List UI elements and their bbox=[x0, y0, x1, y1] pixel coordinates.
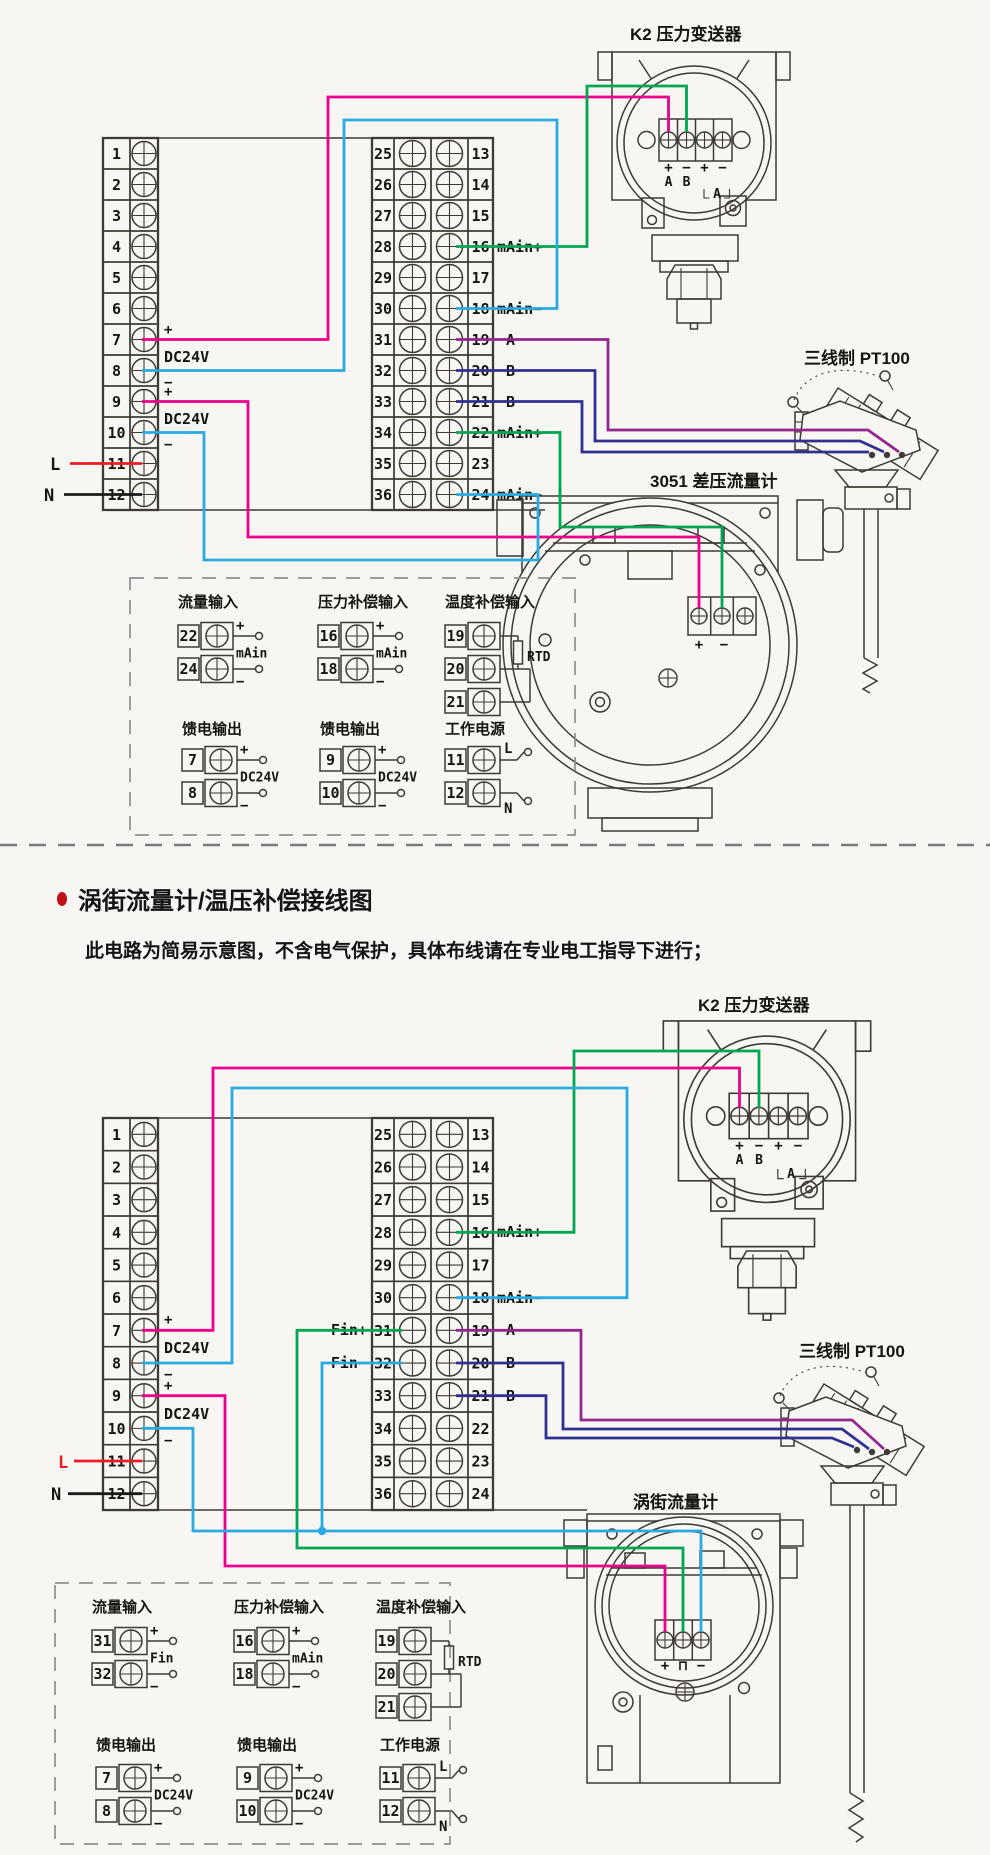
terminal-number: 12 bbox=[446, 784, 464, 802]
terminal-number: 1 bbox=[112, 1126, 121, 1144]
sign-label: − bbox=[150, 1679, 158, 1695]
terminal-number: 13 bbox=[471, 1126, 489, 1144]
terminal-number: 11 bbox=[446, 751, 464, 769]
plus-label: + bbox=[164, 384, 172, 400]
terminal-number: 31 bbox=[374, 331, 392, 349]
terminal-number: 30 bbox=[374, 300, 392, 318]
sign-label: + bbox=[295, 1760, 303, 1776]
minus-label: − bbox=[164, 1433, 172, 1449]
terminal-number: 31 bbox=[93, 1632, 111, 1650]
k2-sign: − bbox=[682, 160, 690, 176]
line-L-tag: L bbox=[439, 1759, 447, 1775]
vortex-flowmeter-drawing: 涡街流量计 + ⊓ − bbox=[564, 1492, 803, 1783]
legend-title: 馈电输出 bbox=[181, 720, 242, 738]
terminal-number: 8 bbox=[188, 784, 197, 802]
pt100-label: 三线制 PT100 bbox=[804, 348, 910, 368]
terminal-number: 25 bbox=[374, 145, 392, 163]
vortex-flowmeter-label: 涡街流量计 bbox=[633, 1492, 718, 1512]
sign-label: + bbox=[376, 618, 384, 634]
terminal-number: 33 bbox=[374, 1387, 392, 1405]
terminal-number: 7 bbox=[112, 331, 121, 349]
k2-sign: − bbox=[755, 1138, 763, 1154]
terminal-number: 15 bbox=[471, 1191, 489, 1209]
legend-title: 馈电输出 bbox=[236, 1736, 297, 1754]
sign-label: − bbox=[295, 1816, 303, 1832]
sign-label: − bbox=[376, 674, 384, 690]
line-N-label: N bbox=[51, 1485, 61, 1505]
signal-tag: mAin bbox=[376, 647, 407, 662]
k2-pressure-transmitter: K2 压力变送器 + − + − A B A bbox=[598, 24, 790, 329]
section-title: 涡街流量计/温压补偿接线图 bbox=[78, 881, 373, 916]
terminal-number: 29 bbox=[374, 269, 392, 287]
legend-title: 温度补偿输入 bbox=[445, 593, 535, 611]
k2-loop-indicator: A bbox=[713, 187, 721, 202]
terminal-number: 27 bbox=[374, 207, 392, 225]
meter-minus-sign: − bbox=[697, 1658, 705, 1674]
terminal-number: 29 bbox=[374, 1257, 392, 1275]
signal-tag: mAin bbox=[236, 647, 267, 662]
terminal-legend: 流量输入3132+−Fin 压力补偿输入1618+−mAin 温度补偿输入192… bbox=[55, 1583, 482, 1844]
signal-tag: Fin bbox=[150, 1652, 173, 1667]
k2-loop-indicator: A bbox=[787, 1167, 795, 1182]
legend-flow-input: 流量输入2224+−mAin bbox=[178, 593, 267, 690]
terminal-number: 33 bbox=[374, 393, 392, 411]
terminal-number: 17 bbox=[471, 1257, 489, 1275]
legend-title: 馈电输出 bbox=[95, 1736, 156, 1754]
legend-title: 压力补偿输入 bbox=[234, 1598, 324, 1616]
terminal-number: 9 bbox=[112, 1387, 121, 1405]
legend-pressure-input: 压力补偿输入1618+−mAin bbox=[318, 593, 408, 690]
legend-flow-input: 流量输入3132+−Fin bbox=[92, 1598, 177, 1695]
line-L-tag: L bbox=[504, 741, 512, 757]
terminal-number: 20 bbox=[377, 1665, 395, 1683]
k2-sign: + bbox=[735, 1138, 743, 1154]
terminal-number: 28 bbox=[374, 1224, 392, 1242]
terminal-number: 17 bbox=[471, 269, 489, 287]
terminal-number: 9 bbox=[243, 1769, 252, 1787]
legend-title: 温度补偿输入 bbox=[376, 1598, 466, 1616]
plus-label: + bbox=[164, 1378, 172, 1394]
terminal-number: 25 bbox=[374, 1126, 392, 1144]
line-L-label: L bbox=[50, 455, 60, 475]
sign-label: + bbox=[240, 742, 248, 758]
section-note: 此电路为简易示意图，不含电气保护，具体布线请在专业电工指导下进行； bbox=[85, 936, 712, 963]
terminal-number: 32 bbox=[93, 1665, 111, 1683]
terminal-number: 9 bbox=[112, 393, 121, 411]
terminal-number: 35 bbox=[374, 1453, 392, 1471]
legend-title: 流量输入 bbox=[178, 593, 238, 611]
dp-flowmeter-label: 3051 差压流量计 bbox=[650, 471, 778, 491]
k2-sign: − bbox=[794, 1138, 802, 1154]
rtd-tag: RTD bbox=[458, 1655, 482, 1670]
signal-tag: mAin bbox=[292, 1652, 323, 1667]
legend-title: 流量输入 bbox=[92, 1598, 152, 1616]
sign-label: − bbox=[236, 674, 244, 690]
wiring-diagram-page: 123456789101112 251326142715281629173018… bbox=[0, 0, 990, 1855]
sign-label: − bbox=[240, 798, 248, 814]
terminal-number: 24 bbox=[179, 660, 197, 678]
sign-label: − bbox=[292, 1679, 300, 1695]
pt100-sensor-drawing: 三线制 PT100 bbox=[774, 1341, 931, 1842]
section-header: 涡街流量计/温压补偿接线图 此电路为简易示意图，不含电气保护，具体布线请在专业电… bbox=[0, 848, 990, 988]
terminal-number: 23 bbox=[471, 1453, 489, 1471]
terminal-number: 8 bbox=[102, 1802, 111, 1820]
terminal-number: 2 bbox=[112, 176, 121, 194]
line-L-label: L bbox=[58, 1453, 68, 1473]
sign-label: + bbox=[236, 618, 244, 634]
legend-feed-output-1: 馈电输出78+−DC24V bbox=[181, 720, 279, 814]
terminal-number: 23 bbox=[471, 455, 489, 473]
sign-label: + bbox=[154, 1760, 162, 1776]
pt100-sensor-drawing: 三线制 PT100 bbox=[788, 348, 945, 693]
legend-feed-output-2: 馈电输出910+−DC24V bbox=[236, 1736, 334, 1832]
k2-sign: + bbox=[664, 160, 672, 176]
k2-transmitter-label: K2 压力变送器 bbox=[630, 24, 742, 44]
terminal-number: 35 bbox=[374, 455, 392, 473]
terminal-number: 21 bbox=[377, 1698, 395, 1716]
terminal-number: 28 bbox=[374, 238, 392, 256]
terminal-number: 22 bbox=[179, 627, 197, 645]
middle-terminal-strip: 2513261427152816291730183119322033213422… bbox=[372, 138, 493, 510]
k2-terminal-B: B bbox=[755, 1153, 763, 1168]
legend-feed-output-1: 馈电输出78+−DC24V bbox=[95, 1736, 193, 1832]
terminal-number: 2 bbox=[112, 1159, 121, 1177]
terminal-number: 6 bbox=[112, 300, 121, 318]
wire-feed1-to-k2-plus bbox=[142, 97, 669, 340]
terminal-number: 18 bbox=[235, 1665, 253, 1683]
legend-title: 工作电源 bbox=[445, 720, 505, 738]
terminal-number: 13 bbox=[471, 145, 489, 163]
dc24v-label: DC24V bbox=[164, 348, 209, 366]
terminal-number: 22 bbox=[471, 1420, 489, 1438]
middle-terminal-strip: 2513261427152816291730183119322033213422… bbox=[372, 1118, 493, 1510]
k2-sign: − bbox=[718, 160, 726, 176]
terminal-number: 36 bbox=[374, 1485, 392, 1503]
terminal-number: 20 bbox=[446, 660, 464, 678]
k2-terminal-A: A bbox=[665, 175, 673, 190]
line-N-tag: N bbox=[504, 801, 512, 817]
meter-plus-sign: + bbox=[661, 1658, 669, 1674]
terminal-number: 7 bbox=[188, 751, 197, 769]
terminal-number: 19 bbox=[377, 1632, 395, 1650]
meter-minus-sign: − bbox=[720, 637, 728, 653]
terminal-number: 26 bbox=[374, 176, 392, 194]
legend-temperature-input: 温度补偿输入192021RTD bbox=[376, 1598, 482, 1721]
terminal-number: 26 bbox=[374, 1159, 392, 1177]
dc24v-label: DC24V bbox=[164, 1405, 209, 1423]
k2-pressure-transmitter: K2 压力变送器 + − + − A B A bbox=[663, 995, 870, 1320]
terminal-number: 10 bbox=[107, 424, 125, 442]
terminal-number: 14 bbox=[471, 1159, 489, 1177]
pt100-label: 三线制 PT100 bbox=[799, 1341, 905, 1361]
terminal-number: 7 bbox=[102, 1769, 111, 1787]
terminal-number: 10 bbox=[321, 784, 339, 802]
terminal-number: 32 bbox=[374, 362, 392, 380]
legend-title: 压力补偿输入 bbox=[318, 593, 408, 611]
left-terminal-strip: 123456789101112 bbox=[103, 1118, 158, 1510]
terminal-number: 4 bbox=[112, 238, 121, 256]
minus-label: − bbox=[164, 437, 172, 453]
rtd-tag: RTD bbox=[527, 650, 551, 665]
legend-working-power: 工作电源1112LN bbox=[445, 720, 532, 817]
sign-label: + bbox=[150, 1623, 158, 1639]
meter-plus-sign: + bbox=[695, 637, 703, 653]
signal-tag: DC24V bbox=[154, 1789, 193, 1804]
terminal-number: 8 bbox=[112, 362, 121, 380]
terminal-number: 3 bbox=[112, 1191, 121, 1209]
terminal-number: 18 bbox=[319, 660, 337, 678]
terminal-number: 5 bbox=[112, 1257, 121, 1275]
plus-label: + bbox=[164, 322, 172, 338]
line-N-label: N bbox=[44, 486, 54, 506]
terminal-number: 5 bbox=[112, 269, 121, 287]
terminal-number: 10 bbox=[107, 1420, 125, 1438]
left-terminal-strip: 123456789101112 bbox=[103, 138, 158, 510]
terminal-number: 15 bbox=[471, 207, 489, 225]
sign-label: − bbox=[154, 1816, 162, 1832]
k2-sign: + bbox=[774, 1138, 782, 1154]
terminal-number: 7 bbox=[112, 1322, 121, 1340]
terminal-number: 19 bbox=[446, 627, 464, 645]
terminal-number: 11 bbox=[381, 1769, 399, 1787]
wire-junction-dot bbox=[318, 1527, 326, 1535]
k2-sign: + bbox=[700, 160, 708, 176]
terminal-number: 16 bbox=[235, 1632, 253, 1650]
meter-pulse-sign: ⊓ bbox=[679, 1658, 688, 1674]
sign-label: + bbox=[378, 742, 386, 758]
terminal-number: 16 bbox=[319, 627, 337, 645]
dc24v-label: DC24V bbox=[164, 1339, 209, 1357]
terminal-number: 8 bbox=[112, 1355, 121, 1373]
terminal-number: 36 bbox=[374, 486, 392, 504]
terminal-number: 6 bbox=[112, 1289, 121, 1307]
sign-label: − bbox=[378, 798, 386, 814]
terminal-number: 14 bbox=[471, 176, 489, 194]
k2-terminal-A: A bbox=[736, 1153, 744, 1168]
k2-transmitter-label: K2 压力变送器 bbox=[698, 995, 810, 1015]
terminal-number: 27 bbox=[374, 1191, 392, 1209]
terminal-number: 10 bbox=[238, 1802, 256, 1820]
signal-tag: DC24V bbox=[295, 1789, 334, 1804]
legend-title: 工作电源 bbox=[380, 1736, 440, 1754]
line-N-tag: N bbox=[439, 1819, 447, 1835]
terminal-number: 34 bbox=[374, 1420, 392, 1438]
legend-pressure-input: 压力补偿输入1618+−mAin bbox=[234, 1598, 324, 1695]
legend-feed-output-2: 馈电输出910+−DC24V bbox=[319, 720, 417, 814]
terminal-number: 30 bbox=[374, 1289, 392, 1307]
terminal-number: 21 bbox=[446, 693, 464, 711]
terminal-number: 9 bbox=[326, 751, 335, 769]
terminal-number: 1 bbox=[112, 145, 121, 163]
vortex-flowmeter-wiring-diagram: 123456789101112 251326142715281629173018… bbox=[0, 988, 990, 1855]
signal-tag: DC24V bbox=[378, 771, 417, 786]
terminal-number: 4 bbox=[112, 1224, 121, 1242]
sign-label: + bbox=[292, 1623, 300, 1639]
terminal-number: 12 bbox=[381, 1802, 399, 1820]
terminal-number: 24 bbox=[471, 1485, 489, 1503]
terminal-number: 34 bbox=[374, 424, 392, 442]
dc24v-label: DC24V bbox=[164, 410, 209, 428]
legend-working-power: 工作电源1112LN bbox=[380, 1736, 467, 1835]
terminal-number: 3 bbox=[112, 207, 121, 225]
dp-flowmeter-wiring-diagram: 123456789101112 251326142715281629173018… bbox=[0, 0, 990, 848]
plus-label: + bbox=[164, 1312, 172, 1328]
signal-tag: DC24V bbox=[240, 771, 279, 786]
bullet-icon bbox=[57, 892, 67, 906]
legend-title: 馈电输出 bbox=[319, 720, 380, 738]
k2-terminal-B: B bbox=[683, 175, 691, 190]
